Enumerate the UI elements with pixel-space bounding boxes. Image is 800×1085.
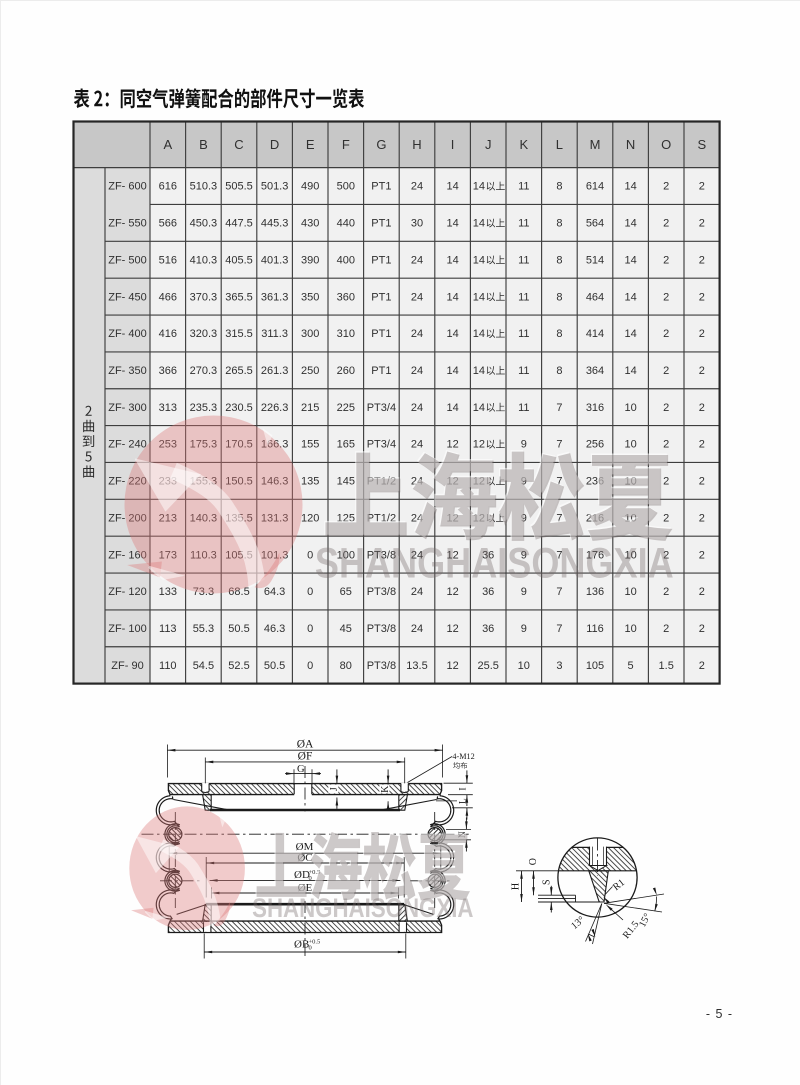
- svg-text:PT1: PT1: [371, 254, 391, 266]
- svg-text:14: 14: [446, 365, 458, 377]
- svg-text:N: N: [626, 137, 635, 152]
- svg-text:14: 14: [624, 218, 636, 230]
- svg-text:54.5: 54.5: [193, 660, 214, 672]
- svg-text:PT1: PT1: [371, 365, 391, 377]
- svg-text:30: 30: [411, 218, 423, 230]
- svg-text:2: 2: [699, 586, 705, 598]
- svg-text:0: 0: [307, 623, 313, 635]
- svg-text:J: J: [329, 787, 340, 791]
- svg-text:24: 24: [411, 291, 423, 303]
- svg-text:0: 0: [307, 586, 313, 598]
- svg-text:14: 14: [473, 365, 485, 377]
- svg-text:0: 0: [307, 549, 313, 561]
- svg-text:2: 2: [663, 586, 669, 598]
- svg-text:260: 260: [337, 365, 355, 377]
- svg-text:46.3: 46.3: [264, 623, 285, 635]
- svg-text:2: 2: [663, 623, 669, 635]
- svg-text:36: 36: [482, 623, 494, 635]
- svg-text:516: 516: [159, 254, 177, 266]
- svg-text:24: 24: [411, 181, 423, 193]
- svg-text:261.3: 261.3: [261, 365, 289, 377]
- svg-text:80: 80: [340, 660, 352, 672]
- svg-text:2: 2: [699, 218, 705, 230]
- svg-text:366: 366: [159, 365, 177, 377]
- svg-text:110: 110: [159, 660, 177, 672]
- svg-text:9: 9: [521, 586, 527, 598]
- svg-text:350: 350: [301, 291, 319, 303]
- svg-text:12: 12: [446, 439, 458, 451]
- svg-text:5: 5: [628, 660, 634, 672]
- svg-text:H: H: [511, 883, 522, 890]
- svg-text:14: 14: [624, 291, 636, 303]
- svg-text:2: 2: [699, 254, 705, 266]
- svg-text:405.5: 405.5: [225, 254, 253, 266]
- svg-text:133: 133: [159, 586, 177, 598]
- svg-text:410.3: 410.3: [190, 254, 218, 266]
- svg-text:L: L: [458, 798, 468, 804]
- svg-text:416: 416: [159, 328, 177, 340]
- svg-text:ZF- 350: ZF- 350: [108, 365, 147, 377]
- svg-text:14: 14: [624, 328, 636, 340]
- svg-text:145: 145: [337, 476, 355, 488]
- svg-text:ZF- 400: ZF- 400: [108, 328, 147, 340]
- svg-text:616: 616: [159, 181, 177, 193]
- svg-text:14: 14: [624, 181, 636, 193]
- svg-text:G: G: [376, 137, 386, 152]
- svg-text:ZF- 450: ZF- 450: [108, 291, 147, 303]
- svg-text:2: 2: [699, 660, 705, 672]
- svg-text:45: 45: [340, 623, 352, 635]
- svg-text:445.3: 445.3: [261, 218, 289, 230]
- svg-text:311.3: 311.3: [261, 328, 288, 340]
- svg-text:24: 24: [411, 439, 423, 451]
- svg-text:PT3/4: PT3/4: [367, 439, 396, 451]
- svg-text:361.3: 361.3: [261, 291, 289, 303]
- svg-text:G: G: [297, 764, 305, 775]
- svg-text:50.5: 50.5: [264, 660, 285, 672]
- svg-text:14: 14: [446, 181, 458, 193]
- svg-text:14: 14: [473, 218, 485, 230]
- svg-text:O: O: [528, 858, 539, 865]
- svg-text:7: 7: [556, 623, 562, 635]
- svg-text:270.3: 270.3: [190, 365, 218, 377]
- svg-text:2: 2: [663, 291, 669, 303]
- svg-text:11: 11: [518, 328, 529, 340]
- svg-text:490: 490: [301, 181, 319, 193]
- svg-text:ØB: ØB: [294, 938, 309, 950]
- svg-text:2: 2: [663, 476, 669, 488]
- svg-text:ØF: ØF: [298, 751, 313, 763]
- svg-text:ZF- 500: ZF- 500: [108, 254, 147, 266]
- svg-text:12: 12: [446, 660, 458, 672]
- svg-text:466: 466: [159, 291, 177, 303]
- svg-text:316: 316: [586, 402, 604, 414]
- svg-text:14: 14: [446, 254, 458, 266]
- svg-text:52.5: 52.5: [228, 660, 249, 672]
- svg-text:4-M12: 4-M12: [452, 752, 474, 761]
- svg-text:235.3: 235.3: [190, 402, 218, 414]
- svg-text:PT3/4: PT3/4: [367, 402, 396, 414]
- svg-text:ZF- 120: ZF- 120: [108, 586, 147, 598]
- svg-text:65: 65: [340, 586, 352, 598]
- svg-text:C: C: [234, 137, 243, 152]
- svg-text:7: 7: [556, 402, 562, 414]
- svg-text:PT1: PT1: [371, 181, 391, 193]
- svg-text:H: H: [412, 137, 421, 152]
- svg-text:14: 14: [446, 291, 458, 303]
- svg-text:2: 2: [699, 439, 705, 451]
- svg-text:24: 24: [411, 328, 423, 340]
- svg-text:2: 2: [699, 181, 705, 193]
- svg-text:447.5: 447.5: [225, 218, 253, 230]
- svg-text:501.3: 501.3: [261, 181, 289, 193]
- svg-text:8: 8: [556, 218, 562, 230]
- svg-text:2: 2: [699, 291, 705, 303]
- svg-text:J: J: [485, 137, 492, 152]
- svg-text:F: F: [342, 137, 350, 152]
- svg-text:265.5: 265.5: [225, 365, 253, 377]
- svg-text:PT3/8: PT3/8: [367, 660, 396, 672]
- svg-text:566: 566: [159, 218, 177, 230]
- svg-text:155: 155: [301, 439, 319, 451]
- svg-text:12: 12: [446, 623, 458, 635]
- svg-text:ØA: ØA: [297, 739, 314, 751]
- svg-text:225: 225: [337, 402, 355, 414]
- svg-text:514: 514: [586, 254, 604, 266]
- svg-text:PT1: PT1: [371, 218, 391, 230]
- svg-text:14: 14: [446, 218, 458, 230]
- svg-text:2: 2: [663, 439, 669, 451]
- svg-text:24: 24: [411, 365, 423, 377]
- svg-text:- 5 -: - 5 -: [706, 1007, 733, 1021]
- svg-text:55.3: 55.3: [193, 623, 214, 635]
- svg-text:14: 14: [473, 254, 485, 266]
- svg-text:10: 10: [624, 402, 636, 414]
- svg-text:2: 2: [699, 476, 705, 488]
- svg-text:11: 11: [518, 291, 529, 303]
- svg-text:120: 120: [301, 512, 319, 524]
- svg-text:450.3: 450.3: [190, 218, 218, 230]
- svg-text:M: M: [590, 137, 601, 152]
- svg-text:B: B: [199, 137, 208, 152]
- svg-text:9: 9: [521, 623, 527, 635]
- svg-text:10: 10: [624, 586, 636, 598]
- svg-text:10: 10: [518, 660, 530, 672]
- svg-text:K: K: [519, 137, 528, 152]
- svg-text:7: 7: [556, 439, 562, 451]
- svg-text:S: S: [697, 137, 706, 152]
- svg-text:A: A: [163, 137, 172, 152]
- svg-text:11: 11: [518, 218, 529, 230]
- svg-text:14: 14: [624, 365, 636, 377]
- svg-text:13.5: 13.5: [406, 660, 427, 672]
- svg-text:L: L: [556, 137, 563, 152]
- svg-text:14: 14: [446, 402, 458, 414]
- svg-text:440: 440: [337, 218, 355, 230]
- svg-text:ZF- 90: ZF- 90: [111, 660, 143, 672]
- svg-text:14: 14: [473, 328, 485, 340]
- svg-text:12: 12: [473, 439, 485, 451]
- svg-text:505.5: 505.5: [225, 181, 253, 193]
- svg-text:14: 14: [446, 328, 458, 340]
- svg-text:2: 2: [663, 365, 669, 377]
- svg-text:2: 2: [699, 402, 705, 414]
- svg-text:0: 0: [309, 945, 312, 952]
- svg-text:2: 2: [699, 328, 705, 340]
- svg-text:I: I: [458, 787, 468, 790]
- svg-text:14: 14: [473, 181, 485, 193]
- svg-text:24: 24: [411, 623, 423, 635]
- svg-text:8: 8: [556, 254, 562, 266]
- svg-text:2: 2: [699, 365, 705, 377]
- svg-text:360: 360: [337, 291, 355, 303]
- svg-text:D: D: [270, 137, 279, 152]
- svg-text:11: 11: [518, 181, 529, 193]
- svg-text:136: 136: [586, 586, 604, 598]
- svg-text:36: 36: [482, 586, 494, 598]
- svg-text:400: 400: [337, 254, 355, 266]
- svg-text:K: K: [380, 785, 391, 793]
- svg-text:230.5: 230.5: [225, 402, 253, 414]
- svg-text:8: 8: [556, 328, 562, 340]
- svg-text:SHANGHAISONGXIA: SHANGHAISONGXIA: [315, 540, 674, 588]
- svg-text:ZF- 550: ZF- 550: [108, 218, 147, 230]
- svg-text:135: 135: [301, 476, 319, 488]
- svg-text:510.3: 510.3: [190, 181, 218, 193]
- svg-text:25.5: 25.5: [477, 660, 498, 672]
- svg-text:7: 7: [556, 586, 562, 598]
- svg-text:14: 14: [473, 291, 485, 303]
- svg-text:365.5: 365.5: [225, 291, 253, 303]
- svg-text:256: 256: [586, 439, 604, 451]
- svg-text:24: 24: [411, 586, 423, 598]
- svg-text:S: S: [542, 879, 553, 885]
- svg-text:24: 24: [411, 402, 423, 414]
- svg-text:320.3: 320.3: [190, 328, 218, 340]
- svg-text:10: 10: [624, 623, 636, 635]
- svg-text:401.3: 401.3: [261, 254, 289, 266]
- svg-text:113: 113: [159, 623, 177, 635]
- svg-text:11: 11: [518, 402, 529, 414]
- svg-text:14: 14: [624, 254, 636, 266]
- svg-text:2: 2: [699, 512, 705, 524]
- svg-text:226.3: 226.3: [261, 402, 289, 414]
- svg-text:2: 2: [663, 218, 669, 230]
- svg-text:SHANGHAISONGXIA: SHANGHAISONGXIA: [252, 893, 473, 923]
- svg-text:PT1: PT1: [371, 291, 391, 303]
- svg-text:116: 116: [586, 623, 604, 635]
- svg-text:564: 564: [586, 218, 604, 230]
- svg-text:PT3/8: PT3/8: [367, 586, 396, 598]
- svg-text:310: 310: [337, 328, 355, 340]
- svg-text:50.5: 50.5: [228, 623, 249, 635]
- svg-text:215: 215: [301, 402, 319, 414]
- svg-text:3: 3: [556, 660, 562, 672]
- svg-text:8: 8: [556, 291, 562, 303]
- svg-text:315.5: 315.5: [225, 328, 253, 340]
- svg-text:2: 2: [699, 549, 705, 561]
- svg-text:2: 2: [663, 328, 669, 340]
- svg-text:ZF- 600: ZF- 600: [108, 181, 147, 193]
- svg-text:364: 364: [586, 365, 604, 377]
- svg-text:10: 10: [624, 439, 636, 451]
- svg-text:390: 390: [301, 254, 319, 266]
- svg-text:ZF- 300: ZF- 300: [108, 402, 147, 414]
- svg-text:2: 2: [663, 512, 669, 524]
- svg-text:370.3: 370.3: [190, 291, 218, 303]
- svg-text:O: O: [661, 137, 671, 152]
- svg-text:313: 313: [159, 402, 177, 414]
- svg-text:14: 14: [473, 402, 485, 414]
- svg-text:8: 8: [556, 181, 562, 193]
- svg-text:+0.5: +0.5: [309, 938, 321, 945]
- svg-text:2: 2: [699, 623, 705, 635]
- svg-text:ZF- 100: ZF- 100: [108, 623, 147, 635]
- svg-text:E: E: [306, 137, 315, 152]
- svg-text:8: 8: [556, 365, 562, 377]
- svg-text:2: 2: [663, 402, 669, 414]
- svg-text:11: 11: [518, 365, 529, 377]
- svg-text:64.3: 64.3: [264, 586, 285, 598]
- svg-text:PT1: PT1: [371, 328, 391, 340]
- svg-text:24: 24: [411, 254, 423, 266]
- svg-text:614: 614: [586, 181, 604, 193]
- svg-text:2: 2: [663, 181, 669, 193]
- svg-text:ZF- 240: ZF- 240: [108, 439, 147, 451]
- svg-text:105: 105: [586, 660, 604, 672]
- svg-text:9: 9: [521, 439, 527, 451]
- svg-text:0: 0: [307, 660, 313, 672]
- svg-text:I: I: [451, 137, 455, 152]
- svg-text:1.5: 1.5: [659, 660, 674, 672]
- svg-text:11: 11: [518, 254, 529, 266]
- svg-text:300: 300: [301, 328, 319, 340]
- svg-text:430: 430: [301, 218, 319, 230]
- svg-text:2: 2: [663, 254, 669, 266]
- svg-text:414: 414: [586, 328, 604, 340]
- svg-text:464: 464: [586, 291, 604, 303]
- svg-text:250: 250: [301, 365, 319, 377]
- svg-text:12: 12: [446, 586, 458, 598]
- svg-text:PT3/8: PT3/8: [367, 623, 396, 635]
- svg-text:165: 165: [337, 439, 355, 451]
- svg-text:500: 500: [337, 181, 355, 193]
